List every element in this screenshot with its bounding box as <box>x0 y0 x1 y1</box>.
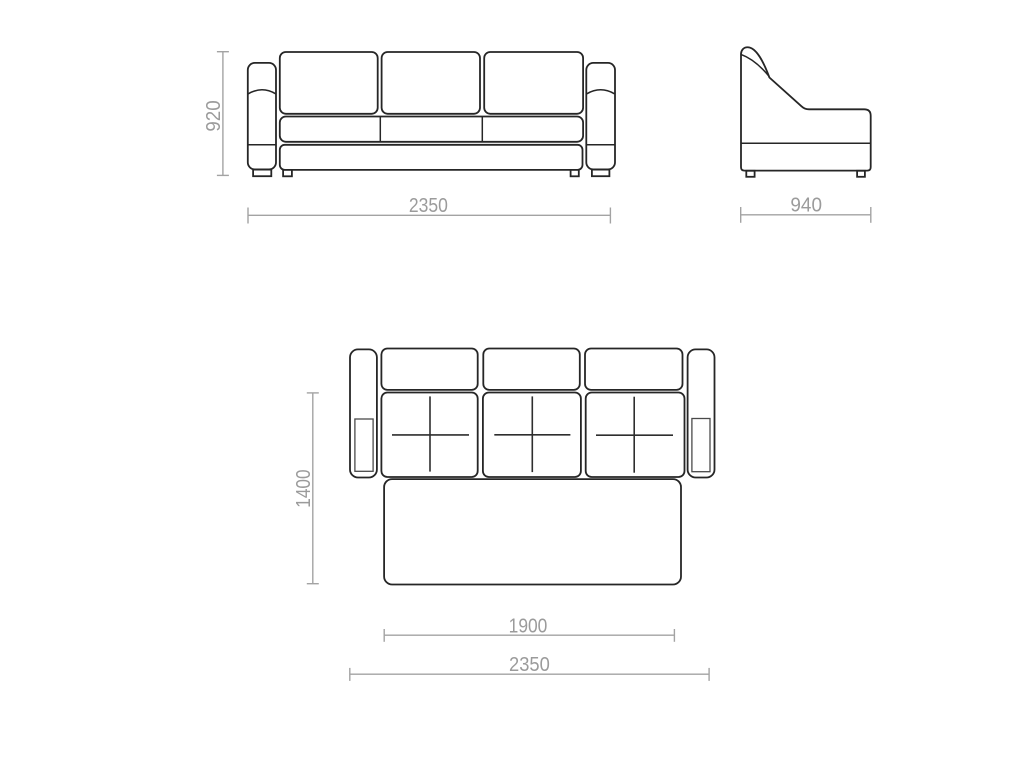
svg-text:1900: 1900 <box>509 615 548 638</box>
svg-text:920: 920 <box>202 100 225 131</box>
svg-text:940: 940 <box>790 193 822 216</box>
svg-text:2350: 2350 <box>409 194 448 217</box>
svg-text:2350: 2350 <box>509 653 550 676</box>
svg-text:1400: 1400 <box>292 469 315 507</box>
